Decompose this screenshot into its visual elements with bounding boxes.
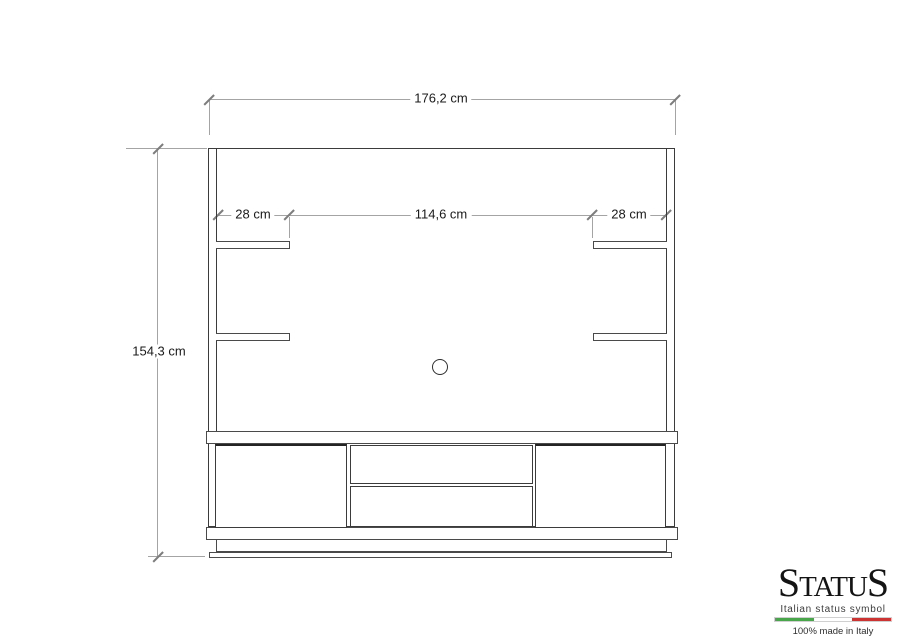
shelf-left-bottom — [216, 333, 290, 341]
base-top-panel — [206, 431, 678, 444]
shelf-right-top — [593, 241, 667, 249]
right-panel-inner-line — [666, 149, 667, 431]
status-logo: STATUS Italian status symbol 100% made i… — [774, 563, 892, 637]
logo-letter: S — [778, 560, 799, 605]
dim-center-label: 114,6 cm — [411, 208, 472, 223]
flag-white-segment — [814, 618, 853, 621]
logo-made-in-italy: 100% made in Italy — [774, 626, 892, 637]
italian-flag-bar — [774, 617, 892, 622]
cable-hole-circle — [432, 359, 448, 375]
logo-letter: S — [867, 560, 888, 605]
dim-right-shelf-label: 28 cm — [607, 208, 650, 223]
flag-red-segment — [852, 618, 891, 621]
dim-height-ext-top — [126, 148, 207, 149]
base-strip — [209, 552, 672, 558]
plinth-panel — [216, 539, 667, 552]
logo-tagline: Italian status symbol — [774, 604, 892, 615]
dim-left-shelf-label: 28 cm — [231, 208, 274, 223]
center-drawer-top — [350, 445, 533, 484]
base-bottom-panel — [206, 527, 678, 540]
logo-wordmark: STATUS — [774, 563, 892, 603]
left-panel-inner-line — [216, 149, 217, 431]
center-drawer-bottom — [350, 486, 533, 527]
dim-width-ext-left — [209, 100, 210, 135]
technical-drawing-canvas: 176,2 cm 154,3 cm 28 cm 114,6 cm 28 cm S… — [0, 0, 904, 640]
shelf-right-bottom — [593, 333, 667, 341]
dim-width-label: 176,2 cm — [410, 92, 471, 107]
right-cabinet-door — [535, 444, 666, 528]
flag-green-segment — [775, 618, 814, 621]
dim-width-ext-right — [675, 100, 676, 135]
logo-letters: TATU — [799, 571, 867, 603]
dim-height-label: 154,3 cm — [128, 344, 189, 359]
shelf-left-top — [216, 241, 290, 249]
left-cabinet-door — [215, 444, 347, 528]
